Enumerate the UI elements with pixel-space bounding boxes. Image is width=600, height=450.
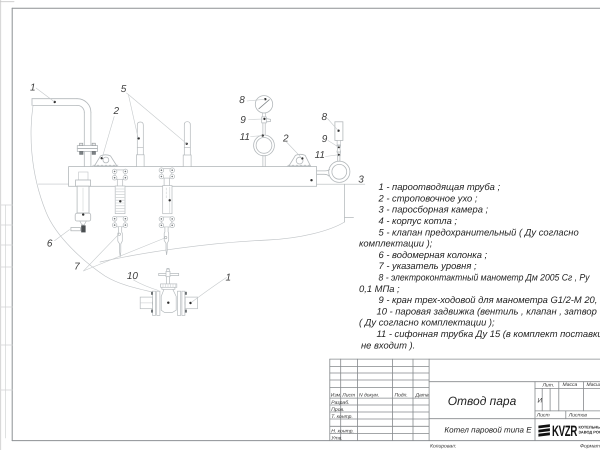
svg-text:3: 3 — [358, 175, 364, 186]
svg-text:9: 9 — [322, 134, 328, 145]
svg-text:Разраб.: Разраб. — [331, 400, 349, 406]
svg-text:Изм.: Изм. — [331, 393, 342, 399]
svg-text:0,1 МПа ;: 0,1 МПа ; — [359, 283, 400, 294]
svg-text:5 - клапан предохранительный: 5 - клапан предохранительный ( Ду соглас… — [379, 226, 579, 237]
svg-text:Лист: Лист — [536, 412, 550, 418]
svg-text:4 - корпус котла ;: 4 - корпус котла ; — [379, 215, 458, 226]
svg-text:Листов: Листов — [568, 412, 588, 418]
svg-text:2: 2 — [113, 106, 120, 117]
svg-text:9 - кран трех-ходовой для ман: 9 - кран трех-ходовой для манометра G1/2… — [379, 294, 598, 305]
svg-text:( Ду согласно комплектации );: ( Ду согласно комплектации ); — [359, 317, 495, 328]
svg-text:Дата: Дата — [415, 393, 429, 399]
svg-text:3 - паросборная камера ;: 3 - паросборная камера ; — [379, 204, 489, 215]
svg-text:Т. контр.: Т. контр. — [331, 414, 353, 420]
svg-text:5: 5 — [121, 84, 127, 95]
svg-text:Лит.: Лит. — [542, 383, 555, 389]
svg-text:Котел паровой типа Е: Котел паровой типа Е — [444, 426, 532, 435]
svg-text:7 - указатель уровня ;: 7 - указатель уровня ; — [379, 260, 477, 271]
svg-text:8: 8 — [239, 95, 245, 106]
svg-text:2 - строповочное ухо ;: 2 - строповочное ухо ; — [378, 192, 478, 203]
svg-text:1: 1 — [226, 272, 232, 283]
svg-text:N докум.: N докум. — [359, 393, 379, 399]
svg-text:6: 6 — [47, 239, 53, 250]
svg-text:не входит ).: не входит ). — [361, 339, 415, 350]
svg-text:ЗАВОД РОСС: ЗАВОД РОСС — [579, 429, 600, 434]
svg-text:Лист: Лист — [341, 393, 355, 399]
svg-text:11 - сифонная трубка Ду 15 (в: 11 - сифонная трубка Ду 15 (в комплект п… — [377, 328, 600, 339]
svg-text:Отвод пара: Отвод пара — [448, 394, 517, 408]
svg-text:1: 1 — [30, 82, 36, 93]
svg-text:Пров.: Пров. — [331, 407, 344, 413]
svg-text:Н. контр.: Н. контр. — [331, 428, 354, 434]
svg-text:11: 11 — [240, 132, 250, 143]
svg-text:10 - паровая задвижка (венти: 10 - паровая задвижка (вентиль , клапан … — [377, 305, 597, 316]
svg-text:6 - водомерная колонка ;: 6 - водомерная колонка ; — [379, 249, 488, 260]
svg-text:11: 11 — [315, 150, 325, 161]
svg-text:KVZR: KVZR — [552, 423, 577, 440]
svg-text:2: 2 — [282, 133, 289, 144]
svg-text:Масштаб: Масштаб — [587, 382, 600, 388]
svg-text:Копировал:: Копировал: — [430, 443, 457, 449]
svg-text:Формат А3: Формат А3 — [580, 443, 600, 449]
svg-text:7: 7 — [74, 262, 80, 273]
svg-text:8 - электроконтактный манометр: 8 - электроконтактный манометр Дм 2005 С… — [379, 272, 591, 283]
svg-text:1 - пароотводящая труба ;: 1 - пароотводящая труба ; — [379, 181, 501, 192]
svg-text:Масса: Масса — [563, 382, 578, 388]
svg-text:Подп.: Подп. — [395, 393, 408, 399]
svg-text:8: 8 — [322, 112, 328, 123]
svg-text:Утв.: Утв. — [331, 436, 342, 442]
svg-text:9: 9 — [240, 115, 246, 126]
svg-text:10: 10 — [127, 271, 139, 282]
svg-text:И: И — [538, 397, 543, 404]
svg-text:комплектации );: комплектации ); — [359, 238, 433, 249]
